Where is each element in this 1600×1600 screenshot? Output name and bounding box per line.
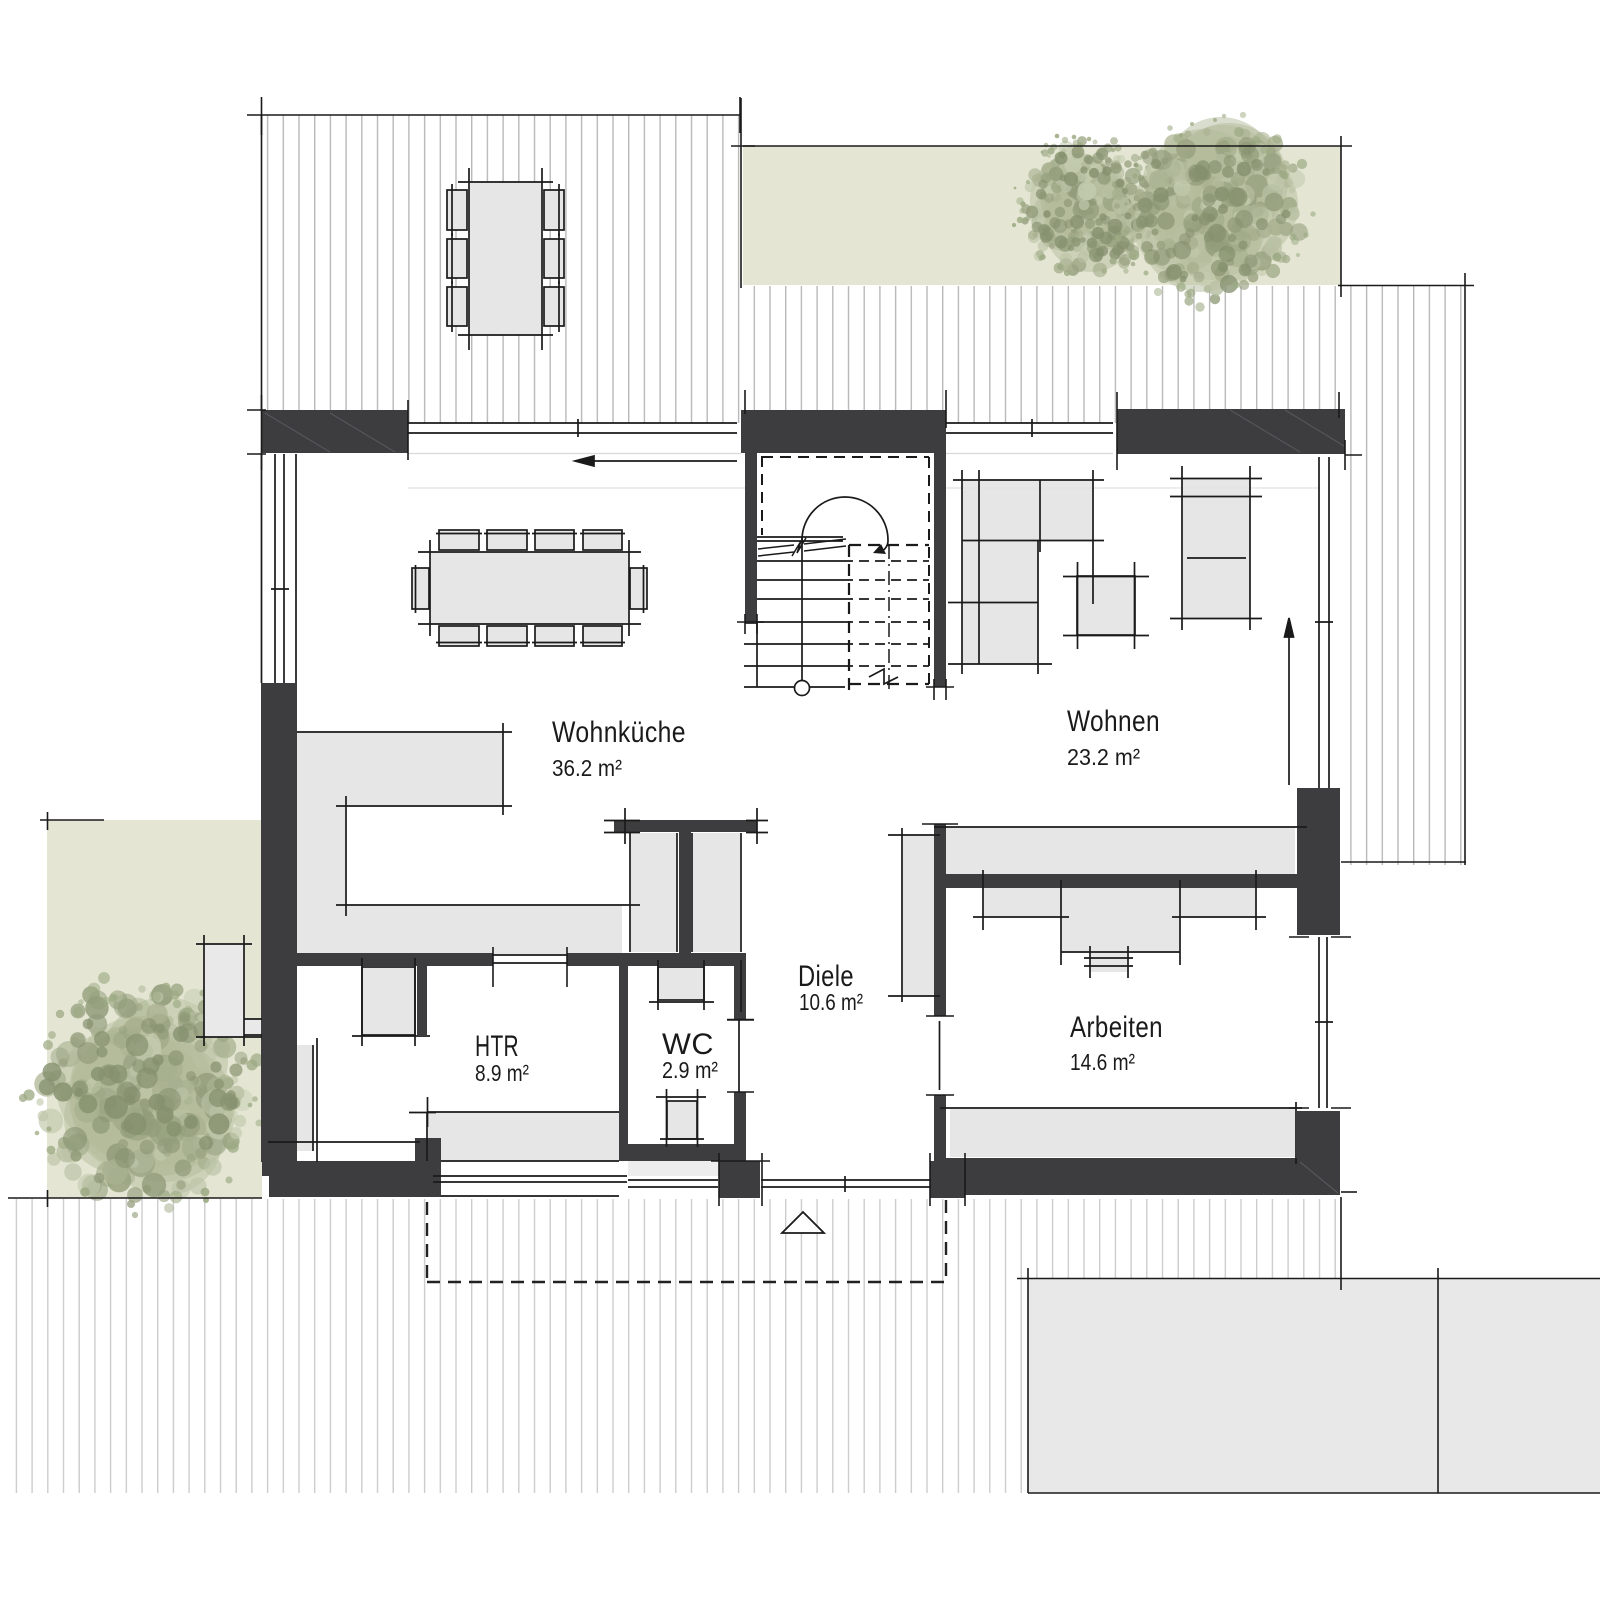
svg-text:36.2 m²: 36.2 m² <box>552 755 622 781</box>
svg-text:14.6 m²: 14.6 m² <box>1070 1049 1135 1075</box>
svg-text:23.2 m²: 23.2 m² <box>1067 744 1140 770</box>
svg-text:Arbeiten: Arbeiten <box>1070 1011 1163 1044</box>
svg-text:8.9 m²: 8.9 m² <box>475 1060 529 1086</box>
svg-text:HTR: HTR <box>475 1030 519 1063</box>
svg-text:Wohnküche: Wohnküche <box>552 716 686 749</box>
svg-text:2.9 m²: 2.9 m² <box>662 1057 718 1083</box>
svg-text:10.6 m²: 10.6 m² <box>799 989 863 1015</box>
svg-text:Wohnen: Wohnen <box>1067 705 1160 738</box>
